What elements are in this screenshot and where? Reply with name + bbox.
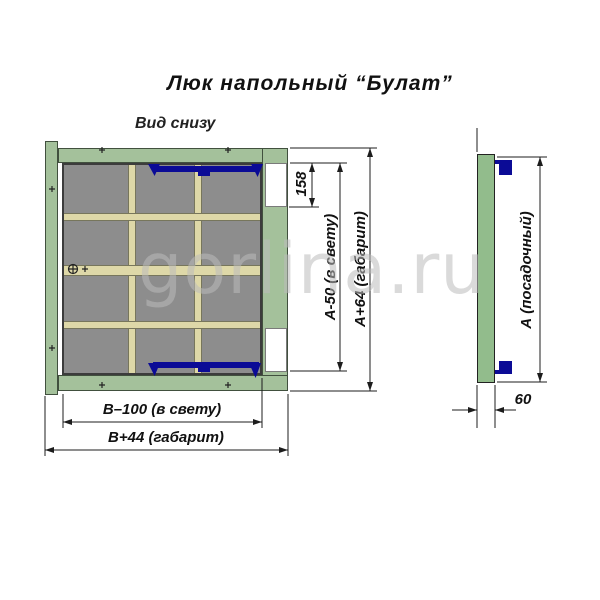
- drawing-canvas: Люк напольный “Булат” Вид снизу: [0, 0, 600, 600]
- dim-width-clear: В–100 (в свету): [82, 402, 242, 420]
- drawing-title: Люк напольный “Булат”: [120, 72, 500, 96]
- dim-frame-depth: 60: [508, 392, 538, 408]
- watermark: gorlina.ru: [138, 226, 538, 312]
- dim-width-overall: В+44 (габарит): [86, 430, 246, 448]
- view-label: Вид снизу: [135, 115, 215, 133]
- dim-hinge-offset: 158: [294, 164, 310, 204]
